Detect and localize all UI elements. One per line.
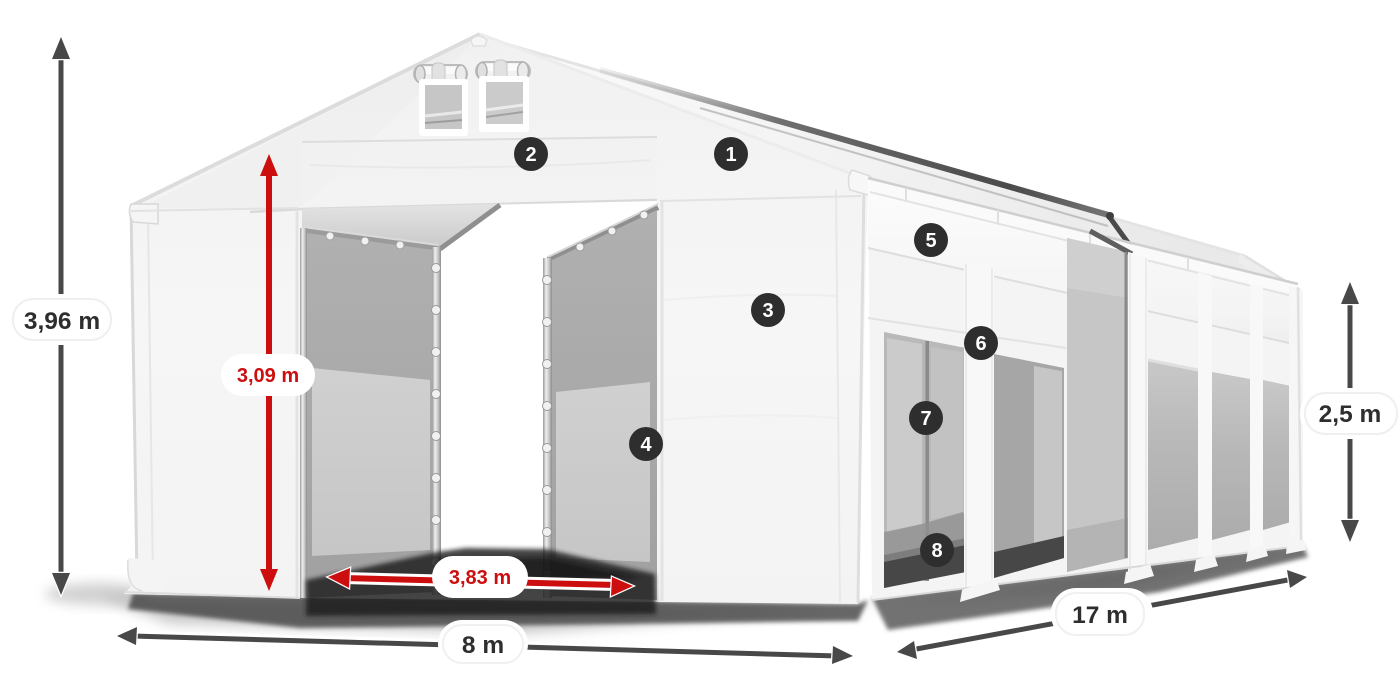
svg-text:6: 6 <box>975 333 986 355</box>
svg-text:3,96 m: 3,96 m <box>24 308 100 335</box>
svg-text:17 m: 17 m <box>1072 602 1128 629</box>
svg-text:2,5 m: 2,5 m <box>1319 401 1382 428</box>
svg-text:3: 3 <box>762 300 773 322</box>
svg-text:3,09 m: 3,09 m <box>237 365 299 387</box>
svg-text:8: 8 <box>931 540 942 562</box>
svg-text:8 m: 8 m <box>462 632 504 659</box>
svg-text:4: 4 <box>640 434 652 456</box>
svg-text:7: 7 <box>920 408 931 430</box>
svg-text:1: 1 <box>725 144 736 166</box>
svg-text:3,83 m: 3,83 m <box>449 567 511 589</box>
svg-text:5: 5 <box>925 230 936 252</box>
svg-text:2: 2 <box>525 144 536 166</box>
